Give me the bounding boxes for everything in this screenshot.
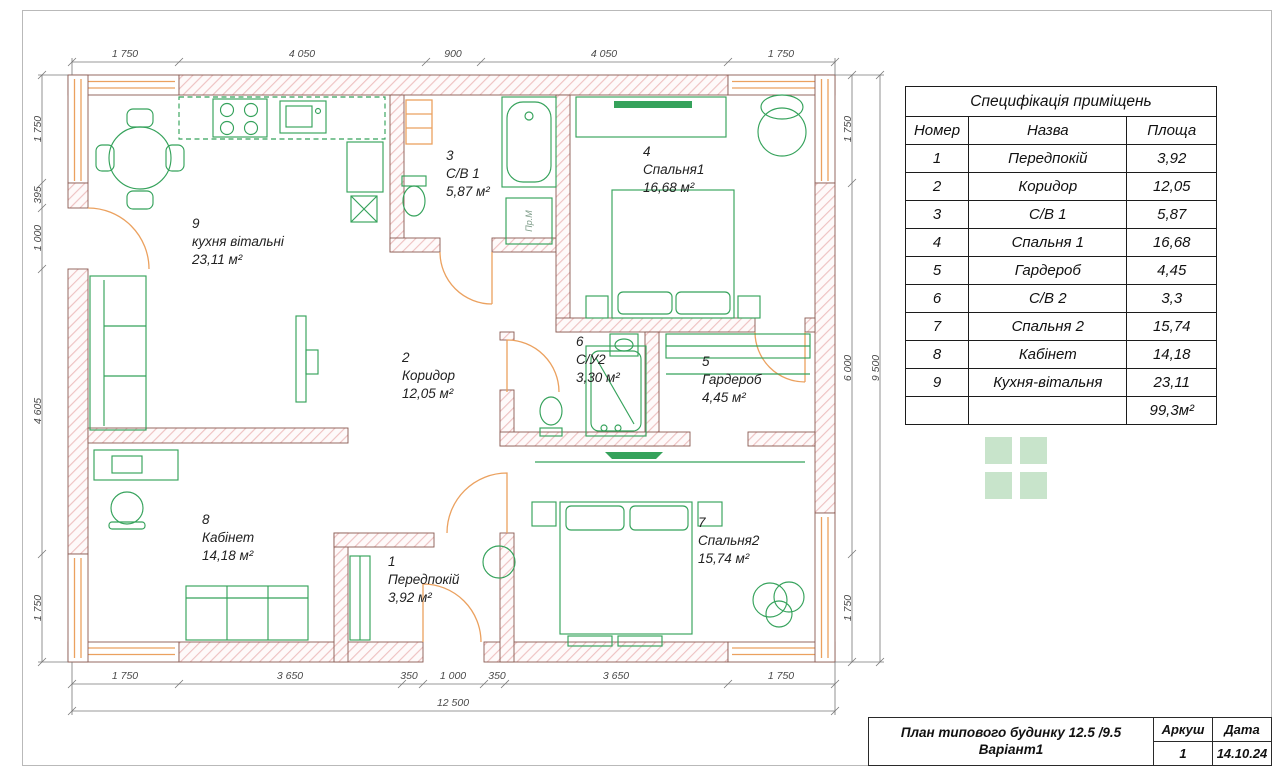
svg-text:3 650: 3 650 bbox=[277, 670, 303, 682]
svg-text:14,18 м²: 14,18 м² bbox=[202, 548, 254, 563]
svg-text:1 750: 1 750 bbox=[842, 595, 854, 621]
room-label-bedroom1: 4 Спальня1 16,68 м² bbox=[643, 144, 704, 195]
table-row: 2Коридор12,05 bbox=[906, 173, 1217, 201]
logo-square bbox=[1020, 472, 1047, 499]
svg-text:1 750: 1 750 bbox=[32, 595, 44, 621]
svg-text:5,87 м²: 5,87 м² bbox=[446, 184, 490, 199]
kitchen-counter-icon bbox=[179, 97, 385, 222]
spec-total-row: 99,3м² bbox=[906, 397, 1217, 425]
svg-text:2: 2 bbox=[401, 350, 410, 365]
drawing-sheet: Пр.М bbox=[0, 0, 1280, 774]
table-row: 5Гардероб4,45 bbox=[906, 257, 1217, 285]
total-area-value: 99,3м² bbox=[1127, 397, 1217, 425]
table-row: 9Кухня-вітальня23,11 bbox=[906, 369, 1217, 397]
drawing-title-line2: Варіант1 bbox=[979, 742, 1043, 759]
table-row: 4Спальня 116,68 bbox=[906, 229, 1217, 257]
bathroom2-fixtures bbox=[540, 334, 646, 436]
room-label-bedroom2: 7 Спальня2 15,74 м² bbox=[698, 515, 760, 566]
office-furniture bbox=[94, 450, 370, 640]
logo-squares bbox=[985, 437, 1047, 499]
date-label: Дата bbox=[1213, 718, 1271, 742]
svg-text:12,05 м²: 12,05 м² bbox=[402, 386, 454, 401]
svg-text:1 000: 1 000 bbox=[32, 225, 44, 251]
washer-label: Пр.М bbox=[524, 210, 534, 232]
date-value: 14.10.24 bbox=[1213, 742, 1271, 765]
svg-text:4 050: 4 050 bbox=[289, 48, 315, 60]
svg-text:9 500: 9 500 bbox=[870, 355, 882, 381]
svg-text:15,74 м²: 15,74 м² bbox=[698, 551, 750, 566]
svg-text:1 000: 1 000 bbox=[440, 670, 466, 682]
svg-text:23,11 м²: 23,11 м² bbox=[191, 252, 243, 267]
spec-header-name: Назва bbox=[969, 117, 1127, 145]
room-label-office: 8 Кабінет 14,18 м² bbox=[202, 512, 254, 563]
svg-text:кухня вітальні: кухня вітальні bbox=[192, 234, 285, 249]
svg-text:3,92 м²: 3,92 м² bbox=[388, 590, 432, 605]
room-label-kitchen: 9 кухня вітальні 23,11 м² bbox=[191, 216, 285, 267]
bedroom1-furniture bbox=[576, 95, 806, 318]
svg-text:8: 8 bbox=[202, 512, 210, 527]
svg-text:900: 900 bbox=[444, 48, 462, 60]
floor-plan: Пр.М bbox=[0, 0, 900, 774]
logo-square bbox=[985, 472, 1012, 499]
svg-text:12 500: 12 500 bbox=[437, 697, 469, 709]
svg-text:С/В 1: С/В 1 bbox=[446, 166, 480, 181]
svg-text:9: 9 bbox=[192, 216, 200, 231]
svg-text:Кабінет: Кабінет bbox=[202, 530, 254, 545]
svg-text:350: 350 bbox=[400, 670, 418, 682]
wardrobe-shelves-icon bbox=[666, 334, 810, 374]
sofa-icon bbox=[90, 276, 146, 430]
svg-text:4: 4 bbox=[643, 144, 651, 159]
svg-text:1 750: 1 750 bbox=[842, 116, 854, 142]
spec-header-row: Номер Назва Площа bbox=[906, 117, 1217, 145]
drawing-title: План типового будинку 12.5 /9.5 Варіант1 bbox=[869, 718, 1154, 765]
bedroom2-furniture bbox=[532, 452, 805, 646]
room-label-wardrobe: 5 Гардероб 4,45 м² bbox=[702, 354, 762, 405]
svg-text:5: 5 bbox=[702, 354, 710, 369]
svg-text:3,30 м²: 3,30 м² bbox=[576, 370, 620, 385]
svg-text:395: 395 bbox=[32, 186, 44, 204]
room-label-bath1: 3 С/В 1 5,87 м² bbox=[446, 148, 490, 199]
svg-text:3: 3 bbox=[446, 148, 454, 163]
svg-text:Передпокій: Передпокій bbox=[388, 572, 460, 587]
svg-text:1 750: 1 750 bbox=[112, 48, 138, 60]
svg-text:7: 7 bbox=[698, 515, 706, 530]
table-row: 8Кабінет14,18 bbox=[906, 341, 1217, 369]
svg-text:1 750: 1 750 bbox=[768, 48, 794, 60]
table-row: 3С/В 15,87 bbox=[906, 201, 1217, 229]
svg-text:1 750: 1 750 bbox=[32, 116, 44, 142]
svg-text:350: 350 bbox=[488, 670, 506, 682]
sheet-label: Аркуш bbox=[1154, 718, 1212, 742]
svg-text:Спальня1: Спальня1 bbox=[643, 162, 704, 177]
spec-header-num: Номер bbox=[906, 117, 969, 145]
room-label-bath2: 6 С/У2 3,30 м² bbox=[576, 334, 620, 385]
svg-text:1 750: 1 750 bbox=[768, 670, 794, 682]
spec-header-area: Площа bbox=[1127, 117, 1217, 145]
spec-table-title: Специфікація приміщень bbox=[906, 87, 1217, 117]
logo-square bbox=[1020, 437, 1047, 464]
svg-text:1: 1 bbox=[388, 554, 396, 569]
svg-text:3 650: 3 650 bbox=[603, 670, 629, 682]
svg-text:16,68 м²: 16,68 м² bbox=[643, 180, 695, 195]
svg-text:Коридор: Коридор bbox=[402, 368, 455, 383]
svg-text:Спальня2: Спальня2 bbox=[698, 533, 760, 548]
table-row: 6С/В 23,3 bbox=[906, 285, 1217, 313]
svg-text:1 750: 1 750 bbox=[112, 670, 138, 682]
svg-text:Гардероб: Гардероб bbox=[702, 372, 762, 387]
sheet-value: 1 bbox=[1154, 742, 1212, 765]
spec-table: Специфікація приміщень Номер Назва Площа… bbox=[905, 86, 1217, 425]
title-block: План типового будинку 12.5 /9.5 Варіант1… bbox=[868, 717, 1272, 766]
svg-text:4 050: 4 050 bbox=[591, 48, 617, 60]
logo-square bbox=[985, 437, 1012, 464]
svg-text:С/У2: С/У2 bbox=[576, 352, 606, 367]
drawing-title-line1: План типового будинку 12.5 /9.5 bbox=[901, 725, 1121, 742]
dining-table-icon bbox=[96, 109, 184, 209]
room-label-hall: 1 Передпокій 3,92 м² bbox=[388, 554, 460, 605]
tv-unit-icon bbox=[296, 316, 318, 402]
svg-text:4 605: 4 605 bbox=[32, 398, 44, 424]
sheet-column: Аркуш 1 bbox=[1154, 718, 1212, 765]
room-label-corridor: 2 Коридор 12,05 м² bbox=[401, 350, 455, 401]
table-row: 1Передпокій3,92 bbox=[906, 145, 1217, 173]
svg-text:6 000: 6 000 bbox=[842, 355, 854, 381]
svg-text:4,45 м²: 4,45 м² bbox=[702, 390, 746, 405]
table-row: 7Спальня 215,74 bbox=[906, 313, 1217, 341]
svg-text:6: 6 bbox=[576, 334, 584, 349]
date-column: Дата 14.10.24 bbox=[1212, 718, 1271, 765]
